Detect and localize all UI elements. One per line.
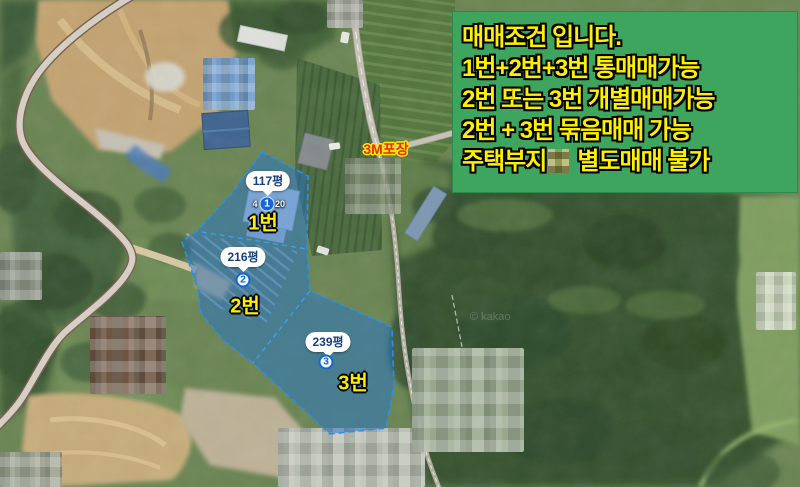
road-surface-label: 3M포장: [363, 139, 408, 159]
parcel3-number-marker: 3: [319, 355, 334, 370]
area-badge-text: 239평: [312, 335, 343, 349]
notice-title: 매매조건 입니다.: [462, 22, 797, 53]
area-badge-text: 117평: [253, 174, 283, 188]
parcel1-label: 1번: [248, 207, 278, 236]
marker-number: 3: [323, 357, 329, 368]
redacted-block: [548, 149, 569, 173]
redacted-line-suffix: 별도매매 불가: [577, 148, 709, 175]
area-badge-parcel1: 117평: [246, 171, 290, 191]
redacted-line-prefix: 주택부지: [462, 148, 546, 175]
badge-pointer: [263, 191, 273, 196]
notice-line: 1번+2번+3번 통매매가능: [462, 53, 797, 84]
parcel3-label: 3번: [338, 367, 368, 396]
notice-line: 2번 또는 3번 개별매매가능: [462, 84, 797, 115]
area-badge-text: 216평: [227, 250, 258, 264]
area-badge-parcel3: 239평: [305, 332, 350, 352]
badge-pointer: [238, 267, 248, 272]
sale-conditions-box: 매매조건 입니다. 1번+2번+3번 통매매가능 2번 또는 3번 개별매매가능…: [452, 11, 798, 193]
marker-number: 2: [240, 275, 246, 286]
notice-line-redacted: 주택부지별도매매 불가: [462, 146, 797, 177]
parcel2-number-marker: 2: [236, 273, 251, 288]
parcel2-label: 2번: [230, 290, 260, 319]
area-badge-parcel2: 216평: [220, 247, 265, 267]
annotated-satellite-map: © kakao © kakao 117평 4 20 1 1번 216평 2 2번…: [0, 0, 800, 487]
notice-line: 2번 + 3번 묶음매매 가능: [462, 115, 797, 146]
